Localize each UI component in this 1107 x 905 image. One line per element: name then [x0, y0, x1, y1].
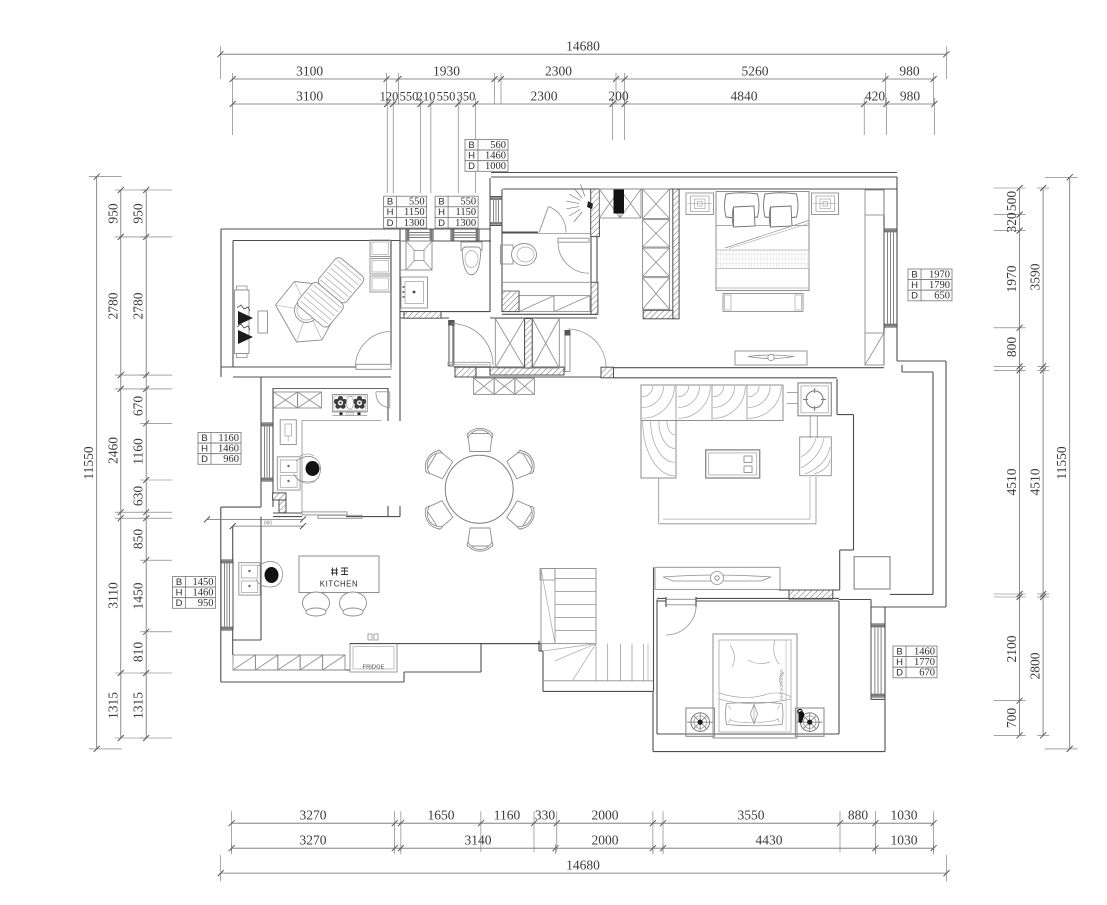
svg-text:KITCHEN: KITCHEN: [320, 580, 358, 589]
svg-text:1315: 1315: [131, 692, 146, 719]
svg-text:5260: 5260: [742, 64, 769, 79]
svg-text:B: B: [176, 577, 182, 588]
svg-text:550: 550: [460, 197, 476, 208]
svg-text:850: 850: [131, 529, 146, 550]
svg-text:H: H: [201, 444, 208, 455]
svg-text:B: B: [911, 269, 917, 280]
svg-text:11550: 11550: [1054, 446, 1069, 479]
svg-text:1300: 1300: [404, 218, 425, 229]
svg-text:330: 330: [535, 808, 556, 823]
svg-text:1450: 1450: [131, 582, 146, 609]
svg-text:420: 420: [865, 89, 886, 104]
svg-text:1460: 1460: [218, 444, 239, 455]
svg-text:D: D: [438, 218, 445, 229]
svg-text:120: 120: [380, 90, 399, 104]
svg-text:B: B: [201, 433, 207, 444]
svg-text:1460: 1460: [914, 646, 935, 657]
svg-text:2780: 2780: [105, 292, 120, 319]
svg-text:1160: 1160: [494, 808, 521, 823]
svg-text:3270: 3270: [300, 833, 327, 848]
svg-text:3550: 3550: [738, 808, 765, 823]
svg-text:14680: 14680: [566, 39, 600, 54]
svg-text:2300: 2300: [531, 89, 558, 104]
svg-text:B: B: [896, 646, 902, 657]
svg-text:2300: 2300: [545, 64, 572, 79]
svg-text:2780: 2780: [131, 292, 146, 319]
svg-text:1650: 1650: [428, 808, 455, 823]
svg-text:1970: 1970: [1004, 265, 1019, 292]
svg-text:1030: 1030: [891, 808, 918, 823]
svg-text:2000: 2000: [592, 833, 619, 848]
svg-text:650: 650: [934, 291, 950, 302]
svg-text:H: H: [468, 151, 475, 162]
svg-text:B: B: [438, 197, 444, 208]
svg-text:550: 550: [409, 197, 425, 208]
svg-text:960: 960: [223, 454, 239, 465]
svg-text:D: D: [911, 291, 918, 302]
svg-text:1150: 1150: [404, 207, 425, 218]
svg-text:4510: 4510: [1028, 468, 1043, 495]
svg-text:1770: 1770: [914, 657, 935, 668]
svg-text:4840: 4840: [731, 89, 758, 104]
svg-text:B: B: [468, 140, 474, 151]
svg-text:700: 700: [1004, 708, 1019, 729]
svg-text:670: 670: [131, 396, 146, 417]
svg-text:1790: 1790: [929, 280, 950, 291]
svg-text:800: 800: [1004, 337, 1019, 358]
svg-text:14680: 14680: [566, 858, 600, 873]
svg-text:1160: 1160: [218, 433, 239, 444]
svg-text:FRIDGE: FRIDGE: [363, 665, 385, 671]
svg-text:210: 210: [417, 90, 436, 104]
svg-text:3100: 3100: [296, 64, 323, 79]
svg-text:1150: 1150: [455, 207, 476, 218]
svg-text:550: 550: [400, 90, 419, 104]
svg-text:D: D: [387, 218, 394, 229]
svg-text:630: 630: [131, 486, 146, 507]
svg-text:D: D: [176, 598, 183, 609]
svg-text:3110: 3110: [105, 582, 120, 609]
svg-text:D: D: [201, 454, 208, 465]
svg-text:4510: 4510: [1004, 468, 1019, 495]
svg-text:H: H: [896, 657, 903, 668]
svg-text:980: 980: [899, 64, 920, 79]
svg-text:1970: 1970: [929, 269, 950, 280]
svg-text:550: 550: [437, 90, 456, 104]
svg-text:2100: 2100: [1004, 635, 1019, 662]
svg-text:2460: 2460: [105, 437, 120, 464]
svg-text:320: 320: [1004, 212, 1019, 233]
svg-text:1450: 1450: [193, 577, 214, 588]
svg-text:H: H: [176, 588, 183, 599]
svg-text:980: 980: [900, 89, 921, 104]
svg-text:4430: 4430: [756, 833, 783, 848]
svg-text:2000: 2000: [592, 808, 619, 823]
svg-text:3100: 3100: [296, 89, 323, 104]
svg-text:560: 560: [490, 140, 506, 151]
svg-text:670: 670: [919, 668, 935, 679]
svg-text:950: 950: [105, 203, 120, 224]
svg-text:1930: 1930: [433, 64, 460, 79]
svg-text:350: 350: [457, 90, 476, 104]
svg-text:1000: 1000: [485, 161, 506, 172]
svg-text:H: H: [387, 207, 394, 218]
svg-text:1460: 1460: [485, 151, 506, 162]
svg-text:1500X2000QD: 1500X2000QD: [779, 669, 785, 701]
svg-text:3270: 3270: [300, 808, 327, 823]
svg-text:11550: 11550: [81, 446, 96, 479]
svg-text:880: 880: [264, 521, 273, 527]
svg-text:1030: 1030: [891, 833, 918, 848]
svg-text:950: 950: [198, 598, 214, 609]
svg-text:810: 810: [131, 642, 146, 663]
svg-text:3140: 3140: [465, 833, 492, 848]
svg-text:200: 200: [608, 89, 629, 104]
svg-text:500: 500: [1004, 191, 1019, 212]
svg-text:1460: 1460: [193, 588, 214, 599]
svg-text:D: D: [468, 161, 475, 172]
svg-text:H: H: [438, 207, 445, 218]
svg-text:880: 880: [848, 808, 869, 823]
svg-text:2800: 2800: [1028, 652, 1043, 679]
svg-text:D: D: [896, 668, 903, 679]
svg-text:1300: 1300: [455, 218, 476, 229]
svg-text:B: B: [387, 197, 393, 208]
svg-text:3590: 3590: [1028, 263, 1043, 290]
svg-text:1160: 1160: [131, 438, 146, 465]
svg-text:H: H: [911, 280, 918, 291]
svg-text:1315: 1315: [105, 692, 120, 719]
svg-text:950: 950: [131, 203, 146, 224]
